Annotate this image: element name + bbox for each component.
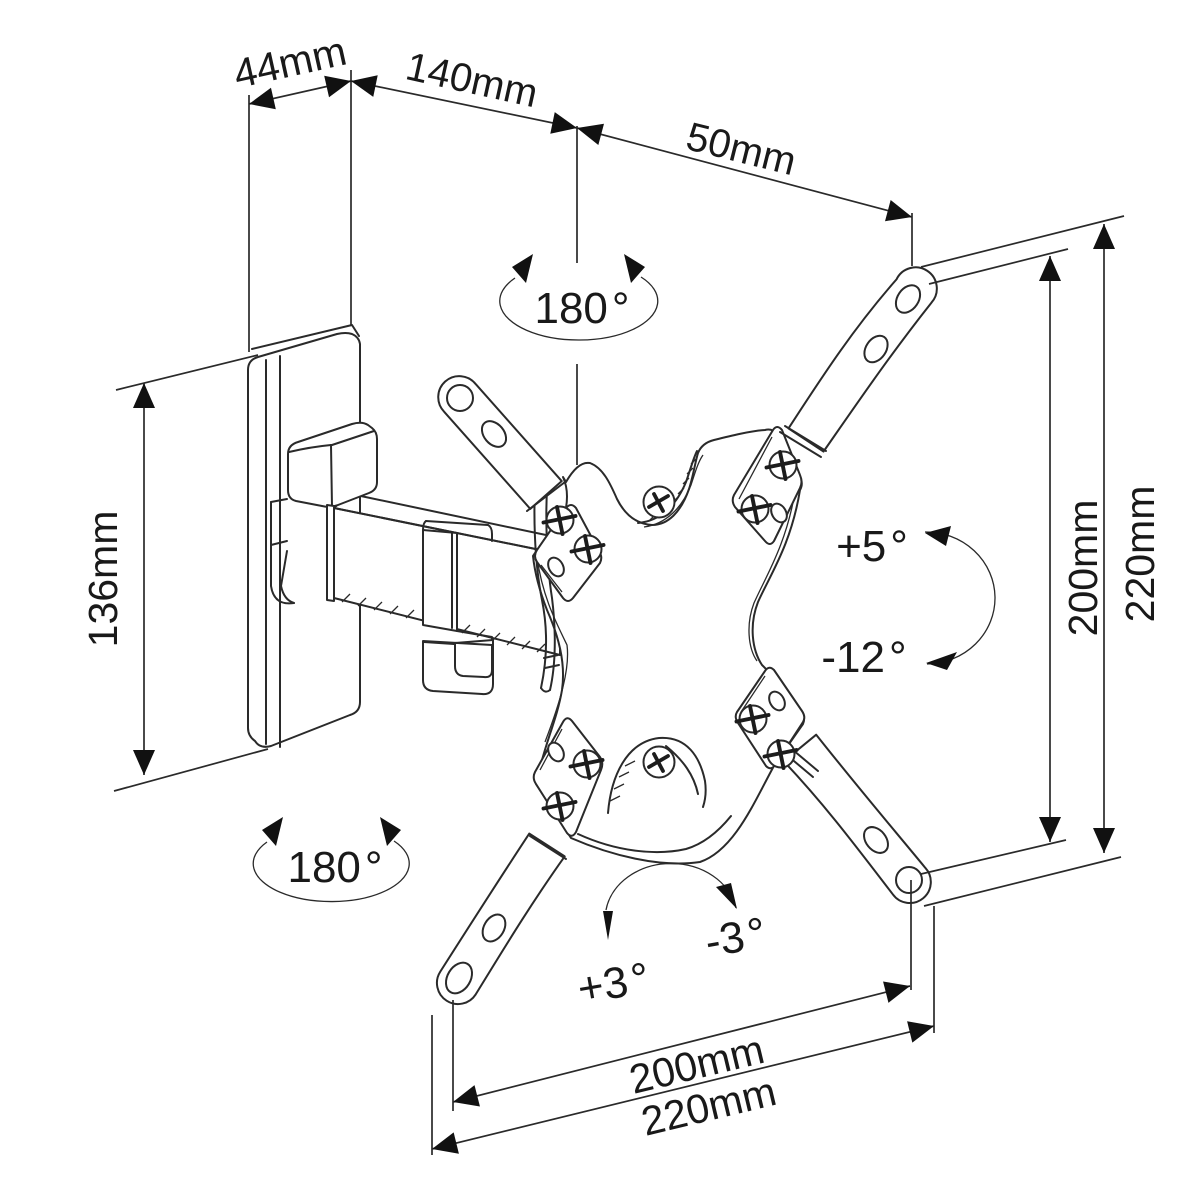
svg-text:180°: 180° (534, 284, 629, 333)
svg-text:-3°: -3° (701, 908, 769, 967)
svg-text:180°: 180° (287, 843, 382, 892)
svg-text:136mm: 136mm (80, 511, 126, 648)
svg-text:220mm: 220mm (1117, 486, 1163, 623)
svg-text:-12°: -12° (821, 633, 906, 682)
svg-text:200mm: 200mm (1060, 500, 1106, 637)
svg-text:+5°: +5° (836, 522, 908, 571)
